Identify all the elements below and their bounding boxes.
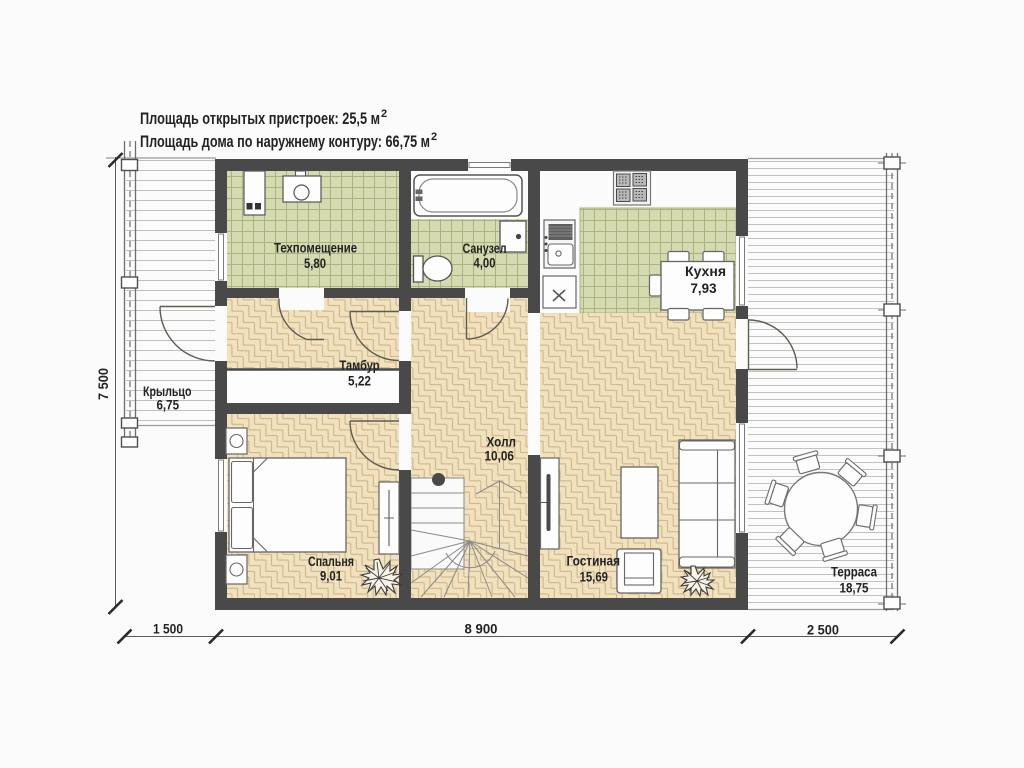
svg-text:2: 2 bbox=[431, 131, 437, 143]
svg-text:Площадь дома по наружнему конт: Площадь дома по наружнему контуру: 66,75… bbox=[140, 132, 430, 151]
svg-text:Площадь открытых пристроек: 25: Площадь открытых пристроек: 25,5 м bbox=[140, 109, 380, 128]
svg-text:Терраса: Терраса bbox=[831, 565, 877, 580]
svg-text:7 500: 7 500 bbox=[96, 368, 111, 400]
svg-text:18,75: 18,75 bbox=[840, 580, 869, 596]
svg-text:9,01: 9,01 bbox=[320, 568, 342, 584]
svg-text:4,00: 4,00 bbox=[474, 255, 496, 271]
svg-text:2 500: 2 500 bbox=[807, 623, 839, 638]
svg-text:7,93: 7,93 bbox=[691, 280, 717, 296]
svg-text:5,80: 5,80 bbox=[304, 255, 326, 271]
svg-text:Кухня: Кухня bbox=[685, 264, 726, 279]
svg-text:2: 2 bbox=[381, 108, 387, 120]
svg-text:6,75: 6,75 bbox=[157, 397, 180, 413]
svg-text:Техпомещение: Техпомещение bbox=[274, 241, 357, 256]
svg-text:10,06: 10,06 bbox=[485, 448, 515, 464]
svg-text:Тамбур: Тамбур bbox=[340, 358, 380, 373]
svg-text:Гостиная: Гостиная bbox=[567, 554, 621, 569]
svg-text:8 900: 8 900 bbox=[465, 622, 498, 637]
svg-text:1 500: 1 500 bbox=[153, 622, 183, 637]
svg-text:5,22: 5,22 bbox=[348, 373, 371, 389]
svg-text:15,69: 15,69 bbox=[580, 569, 609, 585]
